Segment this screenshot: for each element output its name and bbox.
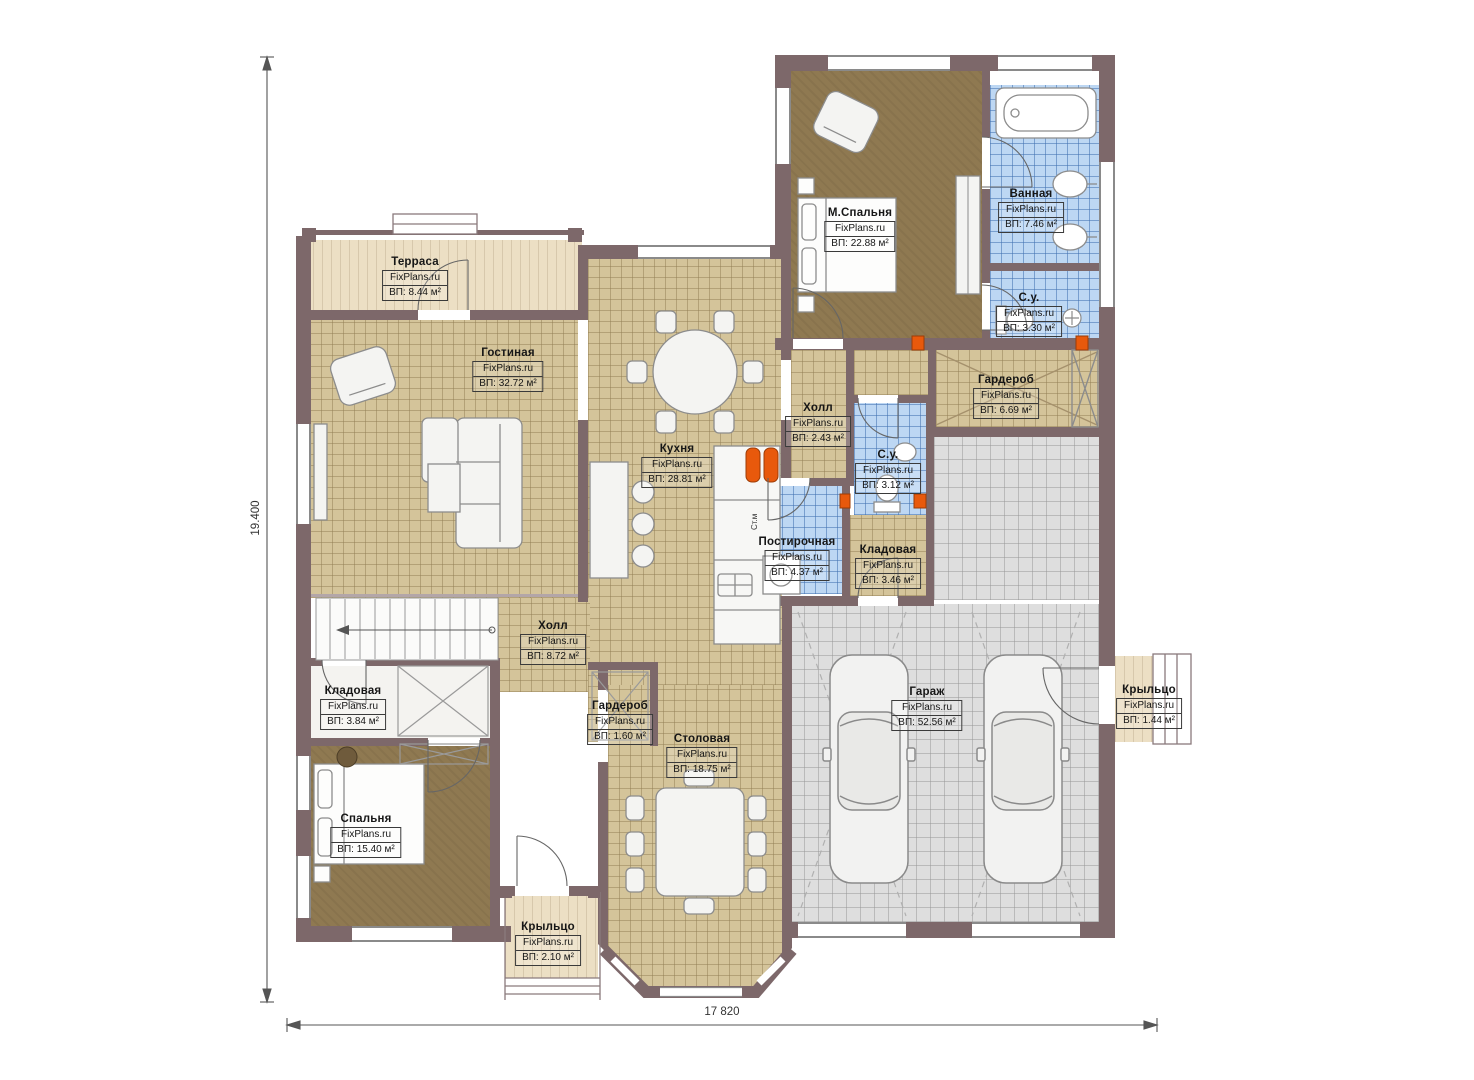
wall-wardrobe-small-top: [588, 662, 658, 670]
door-gap-entrance: [515, 886, 569, 896]
brand: FixPlans.ru: [516, 936, 580, 951]
window-bath-top: [998, 55, 1092, 71]
door-gap-wc-top: [982, 283, 990, 330]
brand: FixPlans.ru: [383, 271, 447, 286]
room-name: Гараж: [891, 686, 962, 698]
room-name: Постирочная: [759, 536, 836, 548]
room-label-storage-mid: Кладовая FixPlans.ru ВП: 3.46 м²: [855, 544, 921, 589]
brand: FixPlans.ru: [856, 464, 920, 479]
room-label-wardrobe-small: Гардероб FixPlans.ru ВП: 1.60 м²: [587, 700, 653, 745]
brand: FixPlans.ru: [997, 307, 1061, 322]
door-gap-storage-mid: [858, 596, 898, 606]
floor-master-bedroom: [791, 70, 982, 340]
room-name: Холл: [520, 620, 586, 632]
brand: FixPlans.ru: [321, 700, 385, 715]
brand: FixPlans.ru: [521, 635, 585, 650]
room-area: ВП: 22.88 м²: [825, 237, 894, 251]
window-bedroom-bottom: [352, 926, 452, 942]
door-gap-bedroom: [428, 738, 480, 746]
brand: FixPlans.ru: [856, 559, 920, 574]
wall-living-kitchen: [578, 259, 588, 602]
wall-wardrobe-left: [928, 345, 936, 433]
brand: FixPlans.ru: [974, 389, 1038, 404]
room-area: ВП: 3.84 м²: [321, 715, 385, 729]
room-name: Гостиная: [472, 347, 543, 359]
room-area: ВП: 28.81 м²: [642, 473, 711, 487]
room-label-hall-small: Холл FixPlans.ru ВП: 2.43 м²: [785, 402, 851, 447]
room-label-garage: Гараж FixPlans.ru ВП: 52.56 м²: [891, 686, 962, 731]
brand: FixPlans.ru: [999, 203, 1063, 218]
room-area: ВП: 8.44 м²: [383, 286, 447, 300]
room-label-master-bedroom: М.Спальня FixPlans.ru ВП: 22.88 м²: [824, 207, 895, 252]
room-area: ВП: 1.44 м²: [1117, 714, 1181, 728]
room-name: Столовая: [666, 733, 737, 745]
room-label-laundry: Постирочная FixPlans.ru ВП: 4.37 м²: [759, 536, 836, 581]
room-label-wc-top: С.у. FixPlans.ru ВП: 3.30 м²: [996, 292, 1062, 337]
room-name: С.у.: [996, 292, 1062, 304]
room-label-porch-right: Крыльцо FixPlans.ru ВП: 1.44 м²: [1116, 684, 1182, 729]
door-gap-bath: [982, 137, 990, 189]
room-name: Кладовая: [855, 544, 921, 556]
wall-garage-upper-top: [928, 427, 1099, 437]
wall-bedroom-right: [490, 658, 500, 926]
brand: FixPlans.ru: [1117, 699, 1181, 714]
room-area: ВП: 7.46 м²: [999, 218, 1063, 232]
room-name: Терраса: [382, 256, 448, 268]
room-area: ВП: 3.12 м²: [856, 479, 920, 493]
floor-plan: Терраса FixPlans.ru ВП: 8.44 м² Гостиная…: [0, 0, 1474, 1080]
room-label-bathroom: Ванная FixPlans.ru ВП: 7.46 м²: [998, 188, 1064, 233]
room-area: ВП: 2.43 м²: [786, 432, 850, 446]
brand: FixPlans.ru: [473, 362, 542, 377]
wall-right-exterior: [1099, 347, 1115, 937]
room-name: Гардероб: [973, 374, 1039, 386]
garage-door-1: [798, 922, 906, 938]
floor-bathroom: [990, 85, 1099, 265]
garage-door-2: [972, 922, 1080, 938]
room-area: ВП: 18.75 м²: [667, 763, 736, 777]
room-name: Ванная: [998, 188, 1064, 200]
washer-label: Ст.м: [750, 514, 759, 530]
wall-laundry-storage: [842, 486, 850, 598]
room-label-kitchen: Кухня FixPlans.ru ВП: 28.81 м²: [641, 443, 712, 488]
room-area: ВП: 6.69 м²: [974, 404, 1038, 418]
brand: FixPlans.ru: [825, 222, 894, 237]
wall-left-exterior: [296, 236, 311, 942]
window-bedroom-left-2: [296, 856, 311, 918]
room-area: ВП: 1.60 м²: [588, 730, 652, 744]
room-area: ВП: 2.10 м²: [516, 951, 580, 965]
door-gap-terrace: [418, 310, 470, 320]
room-label-porch-bottom: Крыльцо FixPlans.ru ВП: 2.10 м²: [515, 921, 581, 966]
window-living-left: [296, 424, 311, 524]
door-gap-storage-left: [322, 658, 366, 666]
wall-dining-garage: [782, 600, 792, 954]
room-name: Крыльцо: [515, 921, 581, 933]
room-area: ВП: 8.72 м²: [521, 650, 585, 664]
room-name: Спальня: [330, 813, 401, 825]
room-area: ВП: 52.56 м²: [892, 716, 961, 730]
floor-corridor: [854, 350, 928, 395]
room-area: ВП: 4.37 м²: [765, 566, 829, 580]
door-gap-wc-mid: [858, 395, 898, 403]
room-name: Кухня: [641, 443, 712, 455]
room-label-hall-main: Холл FixPlans.ru ВП: 8.72 м²: [520, 620, 586, 665]
floor-garage-upper: [934, 434, 1099, 600]
door-gap-master: [793, 339, 843, 349]
wall-bath-wc: [990, 263, 1099, 271]
dimension-horizontal-label: 17 820: [704, 1006, 739, 1018]
floor-garage-main: [790, 604, 1099, 922]
stair-edge-line: [311, 594, 578, 597]
room-label-living: Гостиная FixPlans.ru ВП: 32.72 м²: [472, 347, 543, 392]
room-label-bedroom: Спальня FixPlans.ru ВП: 15.40 м²: [330, 813, 401, 858]
floor-stairs: [316, 598, 498, 660]
brand: FixPlans.ru: [588, 715, 652, 730]
room-name: Холл: [785, 402, 851, 414]
room-area: ВП: 3.46 м²: [856, 574, 920, 588]
room-name: М.Спальня: [824, 207, 895, 219]
room-area: ВП: 15.40 м²: [331, 843, 400, 857]
brand: FixPlans.ru: [667, 748, 736, 763]
opening-living-kitchen: [578, 320, 588, 420]
dimension-vertical-label: 19.400: [250, 500, 262, 535]
window-bath-right: [1099, 162, 1115, 307]
room-name: Кладовая: [320, 685, 386, 697]
brand: FixPlans.ru: [892, 701, 961, 716]
window-kitchen-top: [638, 245, 770, 259]
room-name: Крыльцо: [1116, 684, 1182, 696]
window-master-top: [828, 55, 950, 71]
brand: FixPlans.ru: [331, 828, 400, 843]
door-gap-porch-right: [1099, 666, 1115, 724]
door-gap-laundry: [768, 478, 810, 486]
wall-terrace-edge: [302, 230, 584, 235]
room-label-wardrobe-right: Гардероб FixPlans.ru ВП: 6.69 м²: [973, 374, 1039, 419]
room-label-storage-left: Кладовая FixPlans.ru ВП: 3.84 м²: [320, 685, 386, 730]
room-area: ВП: 32.72 м²: [473, 377, 542, 391]
brand: FixPlans.ru: [765, 551, 829, 566]
brand: FixPlans.ru: [786, 417, 850, 432]
room-area: ВП: 3.30 м²: [997, 322, 1061, 336]
room-name: Гардероб: [587, 700, 653, 712]
window-bedroom-left-1: [296, 756, 311, 810]
wall-laundry-bottom: [752, 596, 934, 606]
window-master-left: [775, 88, 791, 164]
room-label-dining: Столовая FixPlans.ru ВП: 18.75 м²: [666, 733, 737, 778]
terrace-steps: [302, 214, 582, 242]
room-label-wc-mid: С.у. FixPlans.ru ВП: 3.12 м²: [855, 449, 921, 494]
room-name: С.у.: [855, 449, 921, 461]
room-label-terrace: Терраса FixPlans.ru ВП: 8.44 м²: [382, 256, 448, 301]
brand: FixPlans.ru: [642, 458, 711, 473]
